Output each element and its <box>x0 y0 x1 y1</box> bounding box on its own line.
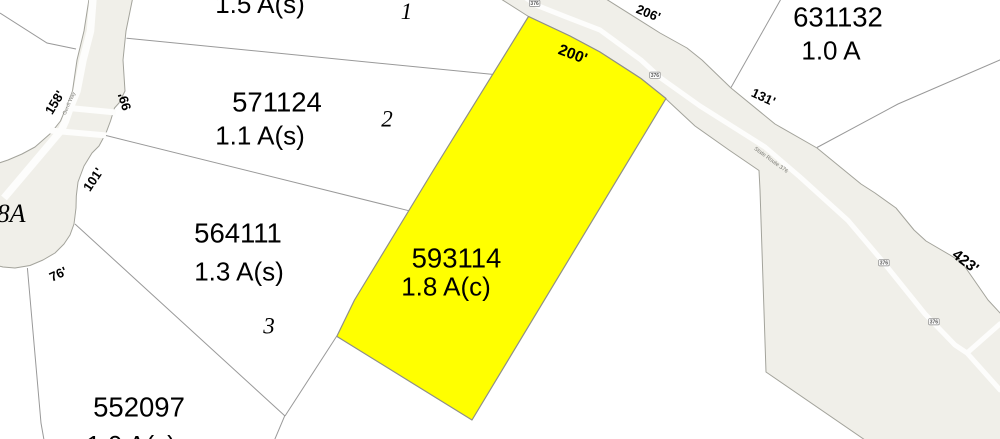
svg-text:376: 376 <box>530 1 539 7</box>
svg-text:376: 376 <box>930 320 939 326</box>
svg-text:376: 376 <box>651 73 660 79</box>
svg-text:593114: 593114 <box>412 243 502 274</box>
svg-text:1.3 A(s): 1.3 A(s) <box>194 257 284 287</box>
svg-text:1.1 A(s): 1.1 A(s) <box>215 121 305 151</box>
svg-text:552097: 552097 <box>93 392 185 423</box>
svg-text:571124: 571124 <box>232 87 322 118</box>
svg-text:376: 376 <box>880 261 889 267</box>
svg-text:8A: 8A <box>0 199 26 228</box>
svg-text:1.5 A(s): 1.5 A(s) <box>215 0 305 19</box>
svg-text:631132: 631132 <box>793 2 883 33</box>
svg-text:2: 2 <box>381 107 393 132</box>
svg-text:564111: 564111 <box>194 218 282 249</box>
svg-text:1.0 A: 1.0 A <box>801 36 861 66</box>
svg-text:1: 1 <box>401 0 413 24</box>
svg-text:3: 3 <box>262 314 275 339</box>
svg-text:1.8 A(c): 1.8 A(c) <box>401 272 491 302</box>
svg-text:1.0 A(s): 1.0 A(s) <box>86 430 176 439</box>
